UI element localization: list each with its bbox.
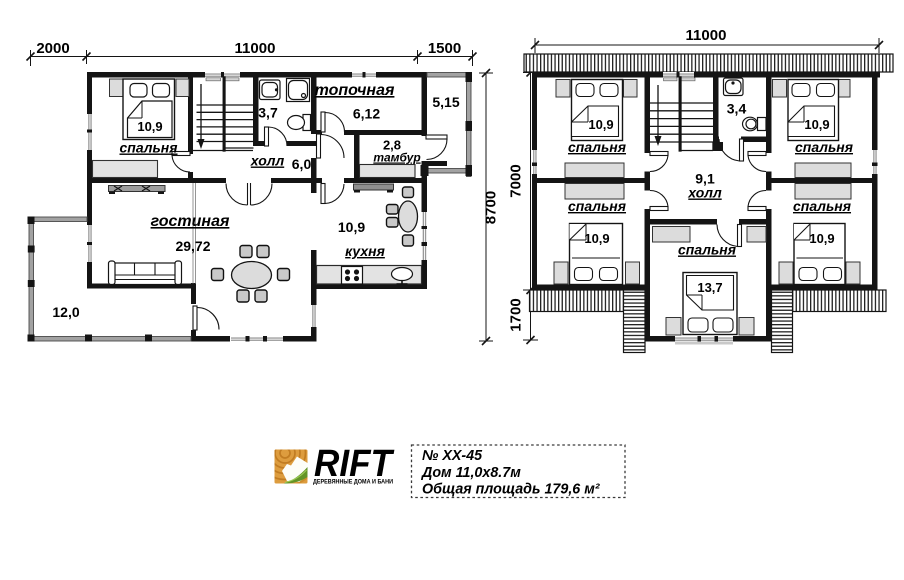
svg-text:3,4: 3,4 <box>727 101 747 117</box>
svg-text:холл: холл <box>250 153 285 169</box>
svg-text:спальня: спальня <box>795 139 853 155</box>
svg-text:ДЕРЕВЯННЫЕ ДОМА И БАНИ: ДЕРЕВЯННЫЕ ДОМА И БАНИ <box>313 479 393 486</box>
svg-text:спальня: спальня <box>793 198 851 214</box>
svg-text:10,9: 10,9 <box>588 117 613 132</box>
svg-text:10,9: 10,9 <box>584 231 609 246</box>
svg-text:11000: 11000 <box>686 27 727 44</box>
svg-text:11000: 11000 <box>235 40 276 57</box>
svg-text:12,0: 12,0 <box>52 304 79 320</box>
svg-text:№ ХХ-45: № ХХ-45 <box>422 448 483 464</box>
svg-text:10,9: 10,9 <box>137 119 162 134</box>
svg-text:6,12: 6,12 <box>353 106 380 122</box>
svg-text:5,15: 5,15 <box>432 94 459 110</box>
svg-text:топочная: топочная <box>315 82 395 99</box>
svg-text:13,7: 13,7 <box>697 280 722 295</box>
svg-text:гостиная: гостиная <box>151 213 230 230</box>
svg-text:2000: 2000 <box>36 40 69 57</box>
svg-text:29,72: 29,72 <box>175 238 210 254</box>
svg-text:спальня: спальня <box>119 140 177 156</box>
svg-text:Дом 11,0х8.7м: Дом 11,0х8.7м <box>420 465 521 481</box>
svg-text:1700: 1700 <box>508 298 525 331</box>
svg-text:1500: 1500 <box>428 40 461 57</box>
svg-text:спальня: спальня <box>568 198 626 214</box>
svg-text:спальня: спальня <box>568 139 626 155</box>
svg-text:10,9: 10,9 <box>804 117 829 132</box>
svg-text:3,7: 3,7 <box>258 105 278 121</box>
svg-text:10,9: 10,9 <box>338 219 365 235</box>
svg-text:10,9: 10,9 <box>809 231 834 246</box>
svg-text:7000: 7000 <box>508 164 525 197</box>
svg-text:6,0: 6,0 <box>292 156 312 172</box>
svg-text:кухня: кухня <box>345 243 385 259</box>
svg-text:спальня: спальня <box>678 242 736 258</box>
svg-text:тамбур: тамбур <box>373 151 420 165</box>
svg-text:8700: 8700 <box>483 191 500 224</box>
svg-text:Общая площадь 179,6 м²: Общая площадь 179,6 м² <box>422 482 601 498</box>
svg-text:холл: холл <box>687 185 722 201</box>
